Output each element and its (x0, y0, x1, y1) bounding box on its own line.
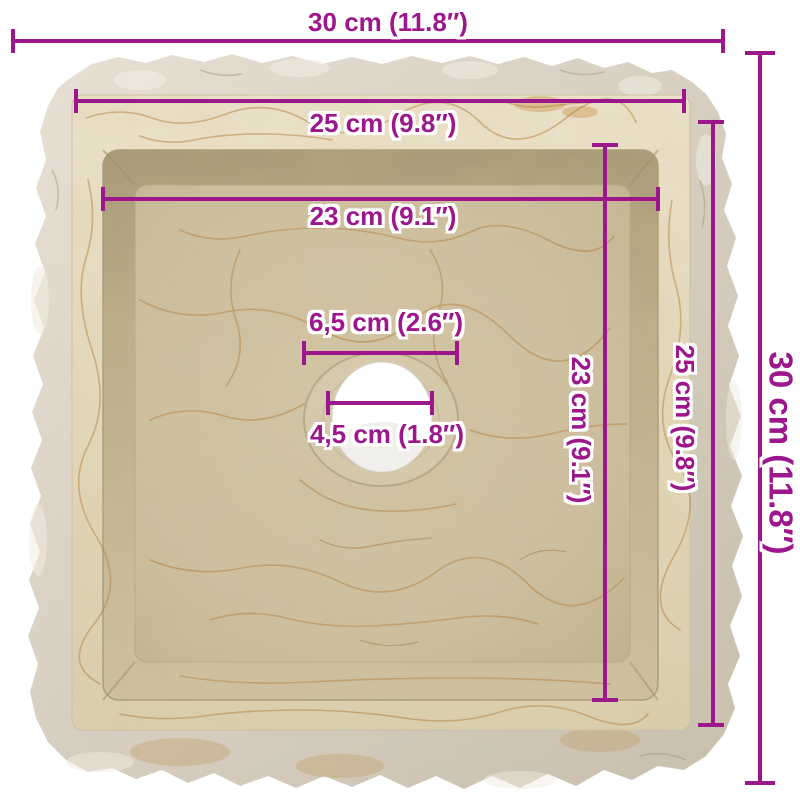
dim-tick (101, 187, 105, 211)
dim-tick (592, 698, 618, 702)
dim-label-overall-width-top: 30 cm (11.8″) (308, 9, 468, 35)
dim-tick (74, 89, 78, 113)
dim-tick (682, 89, 686, 113)
dim-tick (302, 341, 306, 365)
dim-tick (11, 29, 15, 53)
dim-label-rim-width: 25 cm (9.8″) (310, 110, 457, 136)
dim-label-overall-depth-right: 30 cm (11.8″) (765, 352, 798, 555)
dim-tick (656, 187, 660, 211)
dim-label-drain-hole-diameter: 4,5 cm (1.8″) (310, 421, 464, 447)
dim-tick (721, 29, 725, 53)
dim-label-basin-depth-right: 23 cm (9.1″) (568, 357, 594, 504)
dim-tick (430, 391, 434, 415)
dim-tick (592, 143, 618, 147)
dim-tick (698, 120, 724, 124)
dim-label-basin-width: 23 cm (9.1″) (310, 203, 457, 229)
dim-line-drain-recess (304, 351, 457, 355)
dim-line-drain-hole (328, 401, 432, 405)
dim-line-overall-depth (758, 53, 762, 783)
product-dimension-diagram: 30 cm (11.8″) 25 cm (9.8″) 23 cm (9.1″) … (0, 0, 800, 800)
dim-line-rim-width (76, 99, 684, 103)
dim-line-rim-depth (711, 122, 715, 725)
dim-label-drain-recess-diameter: 6,5 cm (2.6″) (309, 309, 463, 335)
dim-line-overall-width (13, 39, 723, 43)
dim-tick (745, 51, 775, 55)
dim-tick (745, 781, 775, 785)
dim-tick (698, 723, 724, 727)
dim-tick (455, 341, 459, 365)
dim-label-rim-depth-right: 25 cm (9.8″) (672, 345, 698, 492)
dim-line-basin-depth (603, 145, 607, 700)
dim-tick (326, 391, 330, 415)
